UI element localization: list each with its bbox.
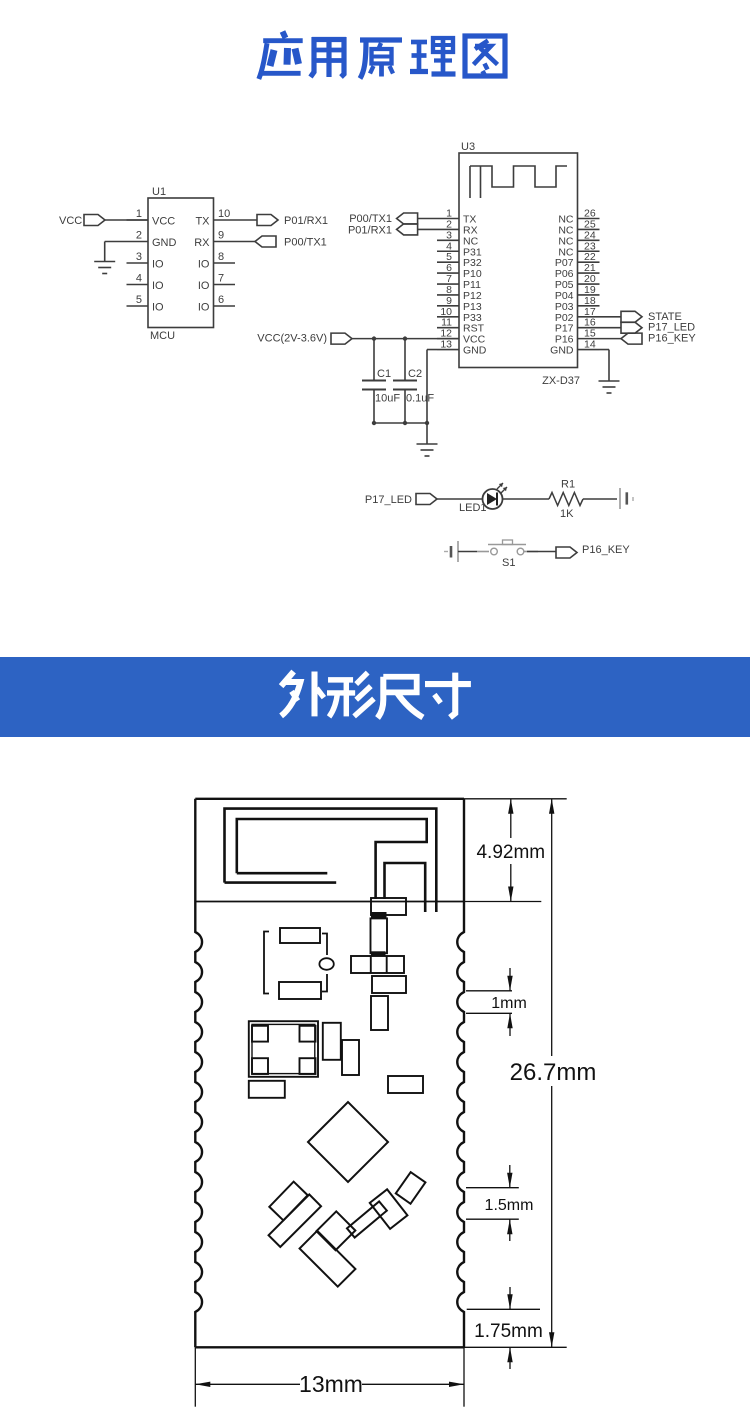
svg-text:10uF: 10uF [375, 393, 400, 405]
svg-text:GND: GND [463, 345, 487, 357]
svg-text:P16_KEY: P16_KEY [648, 333, 696, 345]
svg-text:S1: S1 [502, 557, 515, 569]
svg-text:IO: IO [198, 280, 210, 292]
svg-text:P00/TX1: P00/TX1 [284, 237, 327, 249]
svg-text:2: 2 [136, 230, 142, 242]
svg-text:VCC: VCC [59, 215, 82, 227]
svg-text:0.1uF: 0.1uF [406, 393, 434, 405]
svg-text:P01/RX1: P01/RX1 [284, 215, 328, 227]
svg-text:IO: IO [152, 259, 164, 271]
svg-text:U1: U1 [152, 186, 166, 198]
svg-text:4: 4 [136, 273, 142, 285]
svg-text:TX: TX [195, 216, 210, 228]
svg-text:14: 14 [584, 339, 596, 351]
svg-text:6: 6 [218, 294, 224, 306]
svg-text:P00/TX1: P00/TX1 [349, 213, 392, 225]
svg-text:5: 5 [136, 294, 142, 306]
svg-text:26.7mm: 26.7mm [510, 1059, 597, 1086]
svg-text:1K: 1K [560, 508, 574, 520]
svg-text:C1: C1 [377, 368, 391, 380]
svg-text:9: 9 [218, 230, 224, 242]
svg-text:MCU: MCU [150, 330, 175, 342]
svg-text:P16_KEY: P16_KEY [582, 544, 630, 556]
svg-text:10: 10 [218, 208, 230, 220]
svg-text:IO: IO [198, 302, 210, 314]
svg-text:4.92mm: 4.92mm [476, 842, 545, 863]
svg-text:1: 1 [136, 208, 142, 220]
svg-text:1.75mm: 1.75mm [474, 1321, 543, 1342]
svg-text:C2: C2 [408, 368, 422, 380]
svg-text:ZX-D37: ZX-D37 [542, 375, 580, 387]
svg-text:R1: R1 [561, 479, 575, 491]
svg-text:P01/RX1: P01/RX1 [348, 225, 392, 237]
svg-text:P17_LED: P17_LED [365, 494, 412, 506]
svg-text:3: 3 [136, 251, 142, 263]
svg-text:1mm: 1mm [491, 995, 527, 1012]
svg-text:VCC: VCC [152, 216, 175, 228]
svg-text:IO: IO [152, 280, 164, 292]
svg-text:13mm: 13mm [299, 1371, 363, 1397]
svg-text:7: 7 [218, 273, 224, 285]
svg-text:VCC(2V-3.6V): VCC(2V-3.6V) [257, 333, 327, 345]
svg-text:GND: GND [152, 237, 177, 249]
svg-text:U3: U3 [461, 141, 475, 153]
svg-text:RX: RX [194, 237, 210, 249]
svg-text:GND: GND [550, 345, 574, 357]
svg-text:13: 13 [440, 339, 452, 351]
svg-text:IO: IO [198, 259, 210, 271]
svg-text:8: 8 [218, 251, 224, 263]
svg-text:1.5mm: 1.5mm [485, 1197, 534, 1214]
svg-text:LED1: LED1 [459, 502, 487, 514]
svg-text:IO: IO [152, 302, 164, 314]
